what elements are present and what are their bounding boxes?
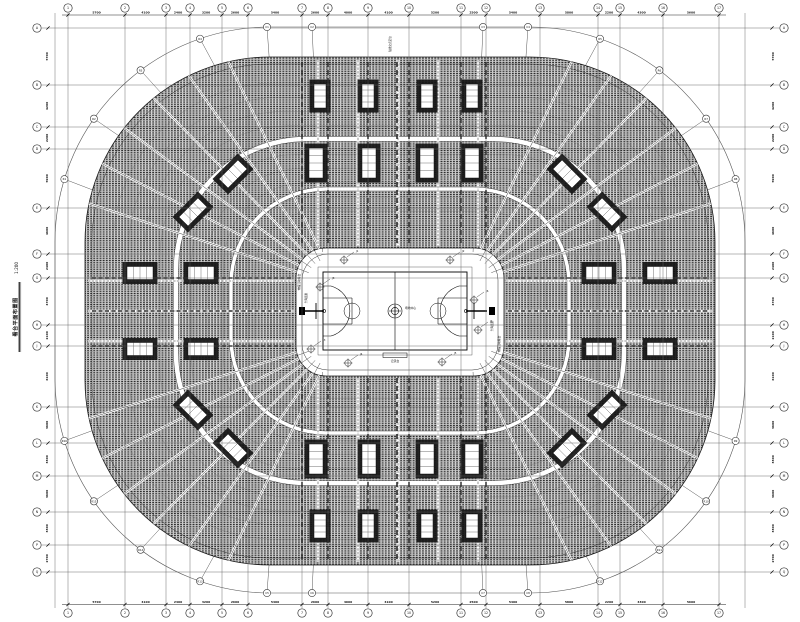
annotation-text: 7	[301, 6, 303, 10]
grid-bubble: P	[33, 541, 41, 549]
annotation-text: 10	[407, 611, 411, 615]
dimension-text: 5600	[687, 600, 695, 604]
dimension-text: 5400	[271, 600, 279, 604]
grid-bubble: 6	[244, 4, 252, 12]
annotation-text: 轴线交点定位	[388, 36, 392, 52]
annotation-text: C7	[481, 591, 485, 595]
radial-grid-bubble: R1	[61, 176, 68, 183]
grid-bubble: J	[780, 342, 788, 350]
arc-grid-bubble: C5	[263, 589, 270, 596]
stair-vomitory	[184, 262, 219, 284]
radial-grid-bubble: R15	[90, 498, 97, 505]
stair-vomitory	[643, 262, 678, 284]
annotation-text: 伸缩活动看台	[497, 335, 501, 352]
grid-bubble: N	[33, 508, 41, 516]
dimension-text: 4100	[384, 10, 392, 14]
grid-bubble: 5	[218, 4, 226, 12]
dimension-text: 3600	[771, 490, 775, 498]
annotation-text: J6	[485, 289, 489, 293]
grid-bubble: A	[780, 24, 788, 32]
basket-stand	[299, 303, 326, 319]
dimension-text: 3300	[45, 524, 49, 532]
floor-note: 轴线交点定位	[388, 36, 392, 52]
grid-bubble: E	[780, 204, 788, 212]
annotation-text: 12	[484, 611, 488, 615]
annotation-text: R2	[92, 117, 96, 121]
radial-grid-bubble: R11	[656, 546, 663, 553]
grid-bubble: 14	[594, 609, 602, 617]
grid-bubble: 16	[659, 609, 667, 617]
annotation-text: J1	[355, 249, 359, 253]
arc-grid-bubble: C1	[263, 23, 270, 30]
dimension-text: 4700	[45, 297, 49, 305]
dimension-text: 5200	[431, 10, 439, 14]
grid-bubble: K	[780, 403, 788, 411]
dimension-text: 5700	[92, 600, 100, 604]
grid-bubble: 1	[64, 4, 72, 12]
dimension-text: 4000	[344, 10, 352, 14]
annotation-text: 16	[661, 611, 665, 615]
annotation-text: 14	[596, 611, 600, 615]
grid-bubble: 3	[162, 609, 170, 617]
grid-bubble: 13	[536, 609, 544, 617]
dimension-text: 3200	[202, 600, 210, 604]
annotation-text: 6	[247, 6, 249, 10]
dimension-text: 2700	[771, 554, 775, 562]
annotation-text: 15	[618, 6, 622, 10]
grid-bubble: 2	[121, 4, 129, 12]
annotation-text: R11	[657, 548, 663, 552]
annotation-text: 1	[67, 6, 69, 10]
annotation-text: R4	[198, 37, 202, 41]
stair-vomitory	[582, 338, 617, 360]
annotation-text: C8	[526, 591, 530, 595]
grid-bubble: H	[780, 321, 788, 329]
annotation-text: R14	[138, 548, 144, 552]
annotation-text: 11	[459, 6, 463, 10]
dimension-text: 2700	[45, 554, 49, 562]
stair-vomitory	[417, 80, 438, 113]
annotation-text: J3	[322, 338, 326, 342]
annotation-text: M	[783, 474, 786, 478]
annotation-text: M	[36, 474, 39, 478]
grid-bubble: M	[780, 472, 788, 480]
annotation-text: 7	[301, 611, 303, 615]
annotation-text: C6	[310, 591, 314, 595]
grid-bubble: 4	[186, 4, 194, 12]
dimension-text: 2200	[771, 134, 775, 142]
annotation-text: J2	[461, 249, 465, 253]
stair-vomitory	[305, 144, 328, 183]
annotation-text: C3	[481, 25, 485, 29]
annotation-text: L	[36, 441, 38, 445]
annotation-text: 9	[367, 611, 369, 615]
annotation-text: 6	[247, 611, 249, 615]
annotation-text: J5	[453, 351, 457, 355]
grid-bubble: P	[780, 541, 788, 549]
grid-bubble: 11	[457, 4, 465, 12]
dimension-text: 2100	[45, 331, 49, 339]
stair-vomitory	[123, 338, 158, 360]
annotation-text: R6	[658, 68, 662, 72]
dimension-text: 4700	[771, 297, 775, 305]
dimension-text: 2400	[45, 262, 49, 270]
grid-bubble: H	[33, 321, 41, 329]
annotation-text: 2	[124, 611, 126, 615]
arena-plan-svg: 记录台场地中心J1J2J3J4J5J6J7J8伸缩活动看台伸缩活动看台升降篮架升…	[0, 0, 800, 622]
annotation-text: 13	[538, 6, 542, 10]
dimension-text: 4600	[771, 227, 775, 235]
annotation-text: C1	[265, 25, 269, 29]
grid-bubble: 14	[594, 4, 602, 12]
dimension-text: 6100	[45, 372, 49, 380]
grid-bubble: A	[33, 24, 41, 32]
arc-grid-bubble: C4	[524, 23, 531, 30]
grid-bubble: 12	[482, 4, 490, 12]
grid-bubble: 7	[298, 4, 306, 12]
dimension-text: 4100	[141, 600, 149, 604]
stair-vomitory	[416, 144, 439, 183]
dimension-text: 4100	[141, 10, 149, 14]
stair-vomitory	[643, 338, 678, 360]
floor-note: 伸缩活动看台	[497, 335, 501, 352]
dimension-text: 2600	[231, 10, 239, 14]
basket-stand	[464, 303, 495, 319]
annotation-text: L	[783, 441, 785, 445]
annotation-text: R16	[62, 439, 68, 443]
stair-vomitory	[461, 144, 484, 183]
annotation-text: J	[36, 344, 38, 348]
annotation-text: 3	[165, 6, 167, 10]
annotation-text: F	[36, 252, 38, 256]
grid-bubble: 12	[482, 609, 490, 617]
grid-bubble: L	[780, 439, 788, 447]
dimension-text: 5400	[271, 10, 279, 14]
annotation-text: R8	[734, 177, 738, 181]
annotation-text: 12	[484, 6, 488, 10]
dimension-text: 5800	[565, 10, 573, 14]
annotation-text: 10	[407, 6, 411, 10]
annotation-text: R5	[598, 37, 602, 41]
dimension-text: 4200	[771, 102, 775, 110]
stair-vomitory	[358, 144, 381, 183]
dimension-text: 2600	[311, 10, 319, 14]
annotation-text: 8	[327, 6, 329, 10]
annotation-text: 升降篮架	[304, 292, 308, 303]
annotation-text: 伸缩活动看台	[297, 273, 301, 290]
dimension-text: 5700	[771, 52, 775, 60]
annotation-text: 2	[124, 6, 126, 10]
grid-bubble: B	[780, 81, 788, 89]
annotation-text: 场地中心	[405, 306, 416, 310]
dimension-text: 5400	[509, 600, 517, 604]
stair-vomitory	[310, 80, 331, 113]
annotation-text: 14	[596, 6, 600, 10]
radial-grid-bubble: R3	[137, 67, 144, 74]
annotation-text: C4	[526, 25, 530, 29]
dimension-text: 3300	[45, 455, 49, 463]
annotation-text: 11	[459, 611, 463, 615]
dimension-text: 5900	[771, 174, 775, 182]
dimension-text: 5700	[92, 10, 100, 14]
grid-bubble: 8	[324, 609, 332, 617]
annotation-text: 升降篮架	[490, 320, 494, 331]
dimension-text: 5800	[565, 600, 573, 604]
dimension-text: 3300	[771, 524, 775, 532]
dimension-text: 3600	[45, 490, 49, 498]
annotation-text: J4	[359, 352, 363, 356]
grid-bubble: 9	[364, 609, 372, 617]
radial-grid-bubble: R10	[703, 498, 710, 505]
annotation-text: 记录台	[391, 359, 400, 363]
dimension-text: 5600	[687, 10, 695, 14]
grid-bubble: 4	[186, 609, 194, 617]
radial-grid-bubble: R16	[61, 437, 68, 444]
annotation-text: B	[36, 83, 38, 87]
annotation-text: 4	[189, 611, 191, 615]
dimension-text: 2200	[605, 600, 613, 604]
drawing-title: 看台平面布置图1:200	[11, 262, 21, 352]
grid-bubble: D	[33, 145, 41, 153]
drawing-scale: 1:200	[14, 262, 19, 274]
stair-vomitory	[305, 440, 328, 479]
grid-bubble: 17	[715, 609, 723, 617]
stair-vomitory	[417, 510, 438, 543]
annotation-text: 13	[538, 611, 542, 615]
dimension-text: 5700	[45, 52, 49, 60]
grid-bubble: C	[33, 123, 41, 131]
grid-bubble: 11	[457, 609, 465, 617]
dimension-text: 4100	[384, 600, 392, 604]
grid-bubble: N	[780, 508, 788, 516]
radial-grid-bubble: R5	[596, 35, 603, 42]
dimension-text: 5900	[45, 174, 49, 182]
annotation-text: 15	[618, 611, 622, 615]
cad-drawing-page: 记录台场地中心J1J2J3J4J5J6J7J8伸缩活动看台伸缩活动看台升降篮架升…	[0, 0, 800, 622]
dimension-text: 2100	[771, 331, 775, 339]
annotation-text: R3	[139, 68, 143, 72]
dimension-text: 2500	[469, 600, 477, 604]
grid-bubble: 3	[162, 4, 170, 12]
annotation-text: E	[783, 206, 785, 210]
arc-grid-bubble: C2	[308, 23, 315, 30]
dimension-text: 4300	[637, 600, 645, 604]
dimension-text: 2400	[771, 262, 775, 270]
stair-vomitory	[462, 80, 483, 113]
radial-grid-bubble: R13	[196, 578, 203, 585]
grid-bubble: 1	[64, 609, 72, 617]
annotation-text: R12	[597, 579, 603, 583]
grid-bubble: F	[33, 250, 41, 258]
radial-grid-bubble: R9	[732, 437, 739, 444]
grid-bubble: 5	[218, 609, 226, 617]
stair-vomitory	[310, 510, 331, 543]
stair-vomitory	[184, 338, 219, 360]
arc-grid-bubble: C6	[308, 589, 315, 596]
annotation-text: 8	[327, 611, 329, 615]
grid-bubble: 15	[616, 609, 624, 617]
annotation-text: R13	[197, 579, 203, 583]
annotation-text: E	[36, 206, 38, 210]
grid-bubble: 6	[244, 609, 252, 617]
annotation-text: F	[783, 252, 785, 256]
grid-bubble: 13	[536, 4, 544, 12]
stair-vomitory	[461, 440, 484, 479]
dimension-text: 6100	[771, 372, 775, 380]
radial-grid-bubble: R4	[196, 35, 203, 42]
annotation-text: C5	[265, 591, 269, 595]
annotation-text: P	[36, 543, 38, 547]
annotation-text: 17	[717, 6, 721, 10]
radial-grid-bubble: R7	[703, 115, 710, 122]
annotation-text: R10	[703, 499, 709, 503]
annotation-text: 16	[661, 6, 665, 10]
stair-vomitory	[358, 440, 381, 479]
floor-note: 伸缩活动看台	[297, 273, 301, 290]
dimension-text: 3300	[771, 455, 775, 463]
grid-bubble: M	[33, 472, 41, 480]
grid-bubble: 10	[405, 4, 413, 12]
dimension-text: 3600	[771, 421, 775, 429]
annotation-text: R1	[63, 177, 67, 181]
dimension-text: 2200	[605, 10, 613, 14]
grid-bubble: L	[33, 439, 41, 447]
grid-bubble: K	[33, 403, 41, 411]
dimension-text: 4000	[344, 600, 352, 604]
stair-vomitory	[462, 510, 483, 543]
radial-grid-bubble: R8	[732, 176, 739, 183]
floor-note: 升降篮架	[490, 320, 494, 331]
annotation-text: J	[783, 344, 785, 348]
annotation-text: 17	[717, 611, 721, 615]
annotation-text: 看台平面布置图	[11, 297, 19, 336]
annotation-text: B	[783, 83, 785, 87]
grid-bubble: 9	[364, 4, 372, 12]
dimension-text: 4300	[637, 10, 645, 14]
dimension-text: 2200	[45, 134, 49, 142]
grid-bubble: C	[780, 123, 788, 131]
annotation-text: 9	[367, 6, 369, 10]
grid-bubble: 10	[405, 609, 413, 617]
dimension-text: 2400	[174, 10, 182, 14]
stair-vomitory	[123, 262, 158, 284]
grid-bubble: 7	[298, 609, 306, 617]
dimension-text: 2600	[311, 600, 319, 604]
stair-vomitory	[416, 440, 439, 479]
dimension-text: 5400	[509, 10, 517, 14]
dimension-text: 4200	[45, 102, 49, 110]
radial-grid-bubble: R12	[596, 578, 603, 585]
radial-grid-bubble: R14	[137, 546, 144, 553]
grid-bubble: D	[780, 145, 788, 153]
dimension-text: 3200	[202, 10, 210, 14]
grid-bubble: B	[33, 81, 41, 89]
grid-bubble: 2	[121, 609, 129, 617]
grid-bubble: G	[33, 274, 41, 282]
dimension-text: 5200	[431, 600, 439, 604]
floor-note: 升降篮架	[304, 292, 308, 303]
arc-grid-bubble: C8	[524, 589, 531, 596]
annotation-text: R9	[734, 439, 738, 443]
dimension-text: 4600	[45, 227, 49, 235]
annotation-text: 3	[165, 611, 167, 615]
annotation-text: 5	[221, 611, 223, 615]
radial-grid-bubble: R6	[656, 67, 663, 74]
center-point-marker: 场地中心	[389, 305, 416, 317]
dimension-text: 2500	[469, 10, 477, 14]
grid-bubble: Q	[33, 568, 41, 576]
radial-grid-bubble: R2	[90, 115, 97, 122]
grid-bubble: 15	[616, 4, 624, 12]
annotation-text: P	[783, 543, 785, 547]
dimension-text: 3600	[45, 421, 49, 429]
grid-bubble: 17	[715, 4, 723, 12]
dimension-text: 2400	[174, 600, 182, 604]
annotation-text: 1	[67, 611, 69, 615]
grid-bubble: J	[33, 342, 41, 350]
annotation-text: R15	[91, 499, 97, 503]
grid-bubble: E	[33, 204, 41, 212]
grid-bubble: 8	[324, 4, 332, 12]
annotation-text: 4	[189, 6, 191, 10]
grid-bubble: Q	[780, 568, 788, 576]
event-floor: 记录台	[302, 254, 498, 370]
arc-grid-bubble: C7	[479, 589, 486, 596]
dimension-text: 2600	[231, 600, 239, 604]
stair-vomitory	[582, 262, 617, 284]
arc-grid-bubble: C3	[479, 23, 486, 30]
grid-bubble: 16	[659, 4, 667, 12]
grid-bubble: G	[780, 274, 788, 282]
grid-bubble: F	[780, 250, 788, 258]
annotation-text: R7	[704, 117, 708, 121]
annotation-text: 5	[221, 6, 223, 10]
annotation-text: C2	[310, 25, 314, 29]
